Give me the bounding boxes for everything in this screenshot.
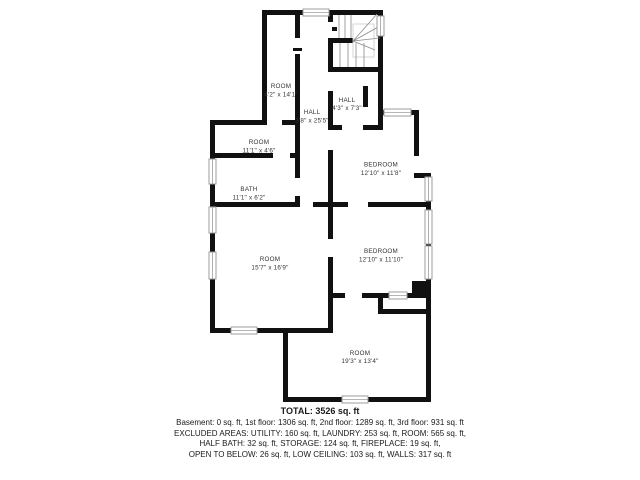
walls — [210, 10, 431, 402]
room-label-top: ROOM — [271, 83, 291, 90]
room-label-big-room: ROOM — [260, 256, 280, 263]
fireplace — [412, 281, 426, 293]
room-label-bath: BATH — [240, 186, 257, 193]
room-dims-hall-main: 3'8" x 25'5" — [295, 118, 328, 125]
area-summary: TOTAL: 3526 sq. ft Basement: 0 sq. ft, 1… — [0, 405, 640, 460]
total-area-text: TOTAL: 3526 sq. ft — [0, 405, 640, 418]
room-dims-big-room: 15'7" x 16'9" — [251, 265, 288, 272]
summary-line-excluded3: OPEN TO BELOW: 26 sq. ft, LOW CEILING: 1… — [0, 450, 640, 461]
room-label-bedroom-lower: BEDROOM — [364, 248, 398, 255]
room-dims-top: 4'2" x 14'1" — [264, 92, 297, 99]
room-dims-small-room: 11'1" x 4'6" — [243, 148, 276, 155]
room-label-bedroom-upper: BEDROOM — [364, 162, 398, 169]
summary-line-excluded2: HALF BATH: 32 sq. ft, STORAGE: 124 sq. f… — [0, 439, 640, 450]
room-label-bottom-room: ROOM — [350, 350, 370, 357]
room-dims-bath: 11'1" x 6'2" — [233, 195, 266, 202]
room-label-hall-main: HALL — [304, 109, 321, 116]
summary-line-floors: Basement: 0 sq. ft, 1st floor: 1306 sq. … — [0, 418, 640, 429]
room-dims-bottom-room: 19'3" x 13'4" — [341, 358, 378, 365]
room-dims-bedroom-lower: 12'10" x 11'10" — [359, 257, 403, 264]
room-label-small-room: ROOM — [249, 139, 269, 146]
room-dims-hall-small: 4'3" x 7'3" — [332, 105, 362, 112]
summary-line-excluded1: EXCLUDED AREAS: UTILITY: 160 sq. ft, LAU… — [0, 429, 640, 440]
room-label-hall-small: HALL — [339, 97, 356, 104]
room-dims-bedroom-upper: 12'10" x 11'8" — [361, 170, 401, 177]
